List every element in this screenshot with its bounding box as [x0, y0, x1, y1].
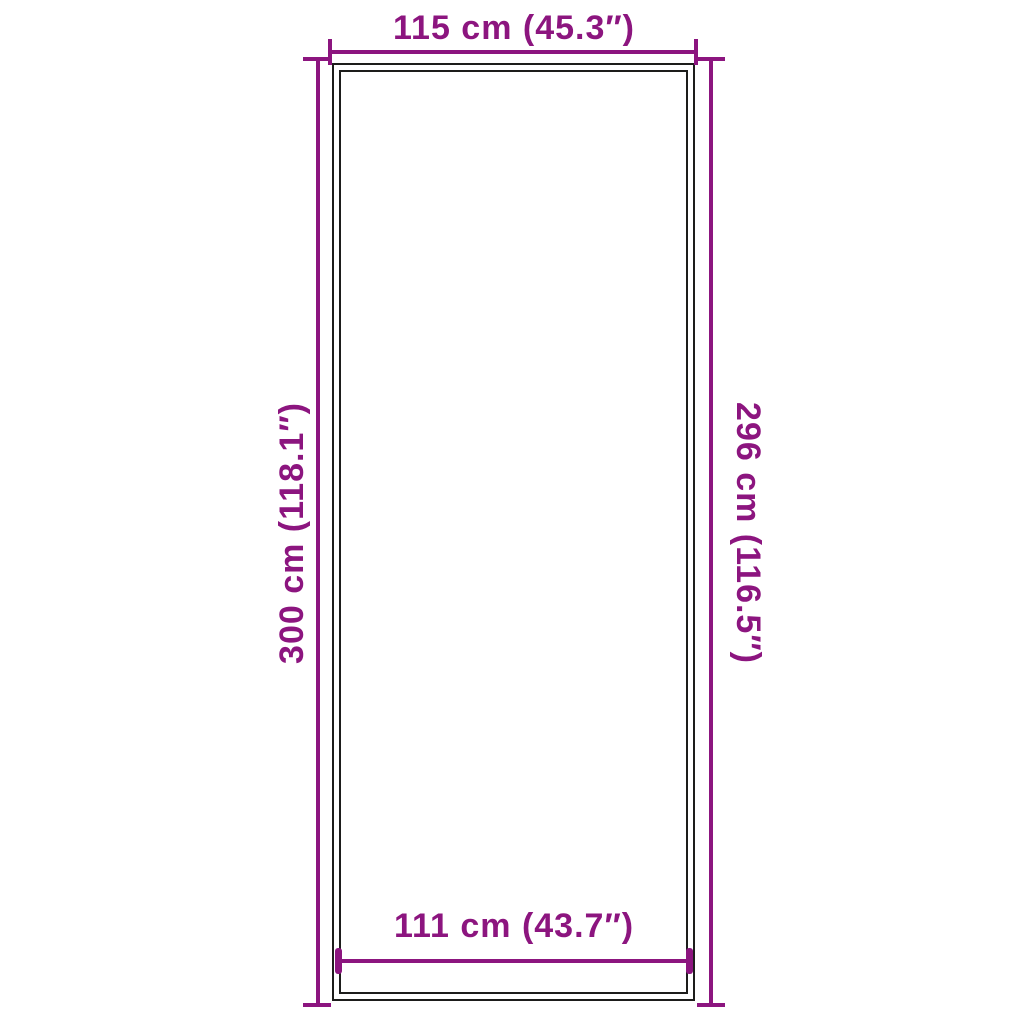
right-dimension-tick-top: [697, 57, 725, 61]
bottom-dimension-tick-right: [686, 948, 693, 974]
right-height-label: 296 cm (116.5″): [728, 323, 768, 743]
left-height-label: 300 cm (118.1″): [272, 323, 312, 743]
bottom-dimension-tick-left: [335, 948, 342, 974]
top-dimension-line: [330, 50, 698, 54]
left-dimension-tick-bottom: [303, 1003, 331, 1007]
top-dimension-tick-right: [694, 39, 698, 65]
bottom-dimension-line: [338, 959, 690, 963]
product-outline-inner: [339, 70, 688, 994]
top-width-label: 115 cm (45.3″): [314, 8, 714, 48]
top-dimension-tick-left: [328, 39, 332, 65]
left-dimension-line: [316, 58, 320, 1006]
left-dimension-tick-top: [303, 57, 331, 61]
right-dimension-line: [709, 58, 713, 1006]
product-outline-outer: [332, 63, 695, 1001]
bottom-width-label: 111 cm (43.7″): [314, 906, 714, 946]
right-dimension-tick-bottom: [697, 1003, 725, 1007]
dimension-diagram: 115 cm (45.3″) 300 cm (118.1″) 296 cm (1…: [0, 0, 1024, 1024]
